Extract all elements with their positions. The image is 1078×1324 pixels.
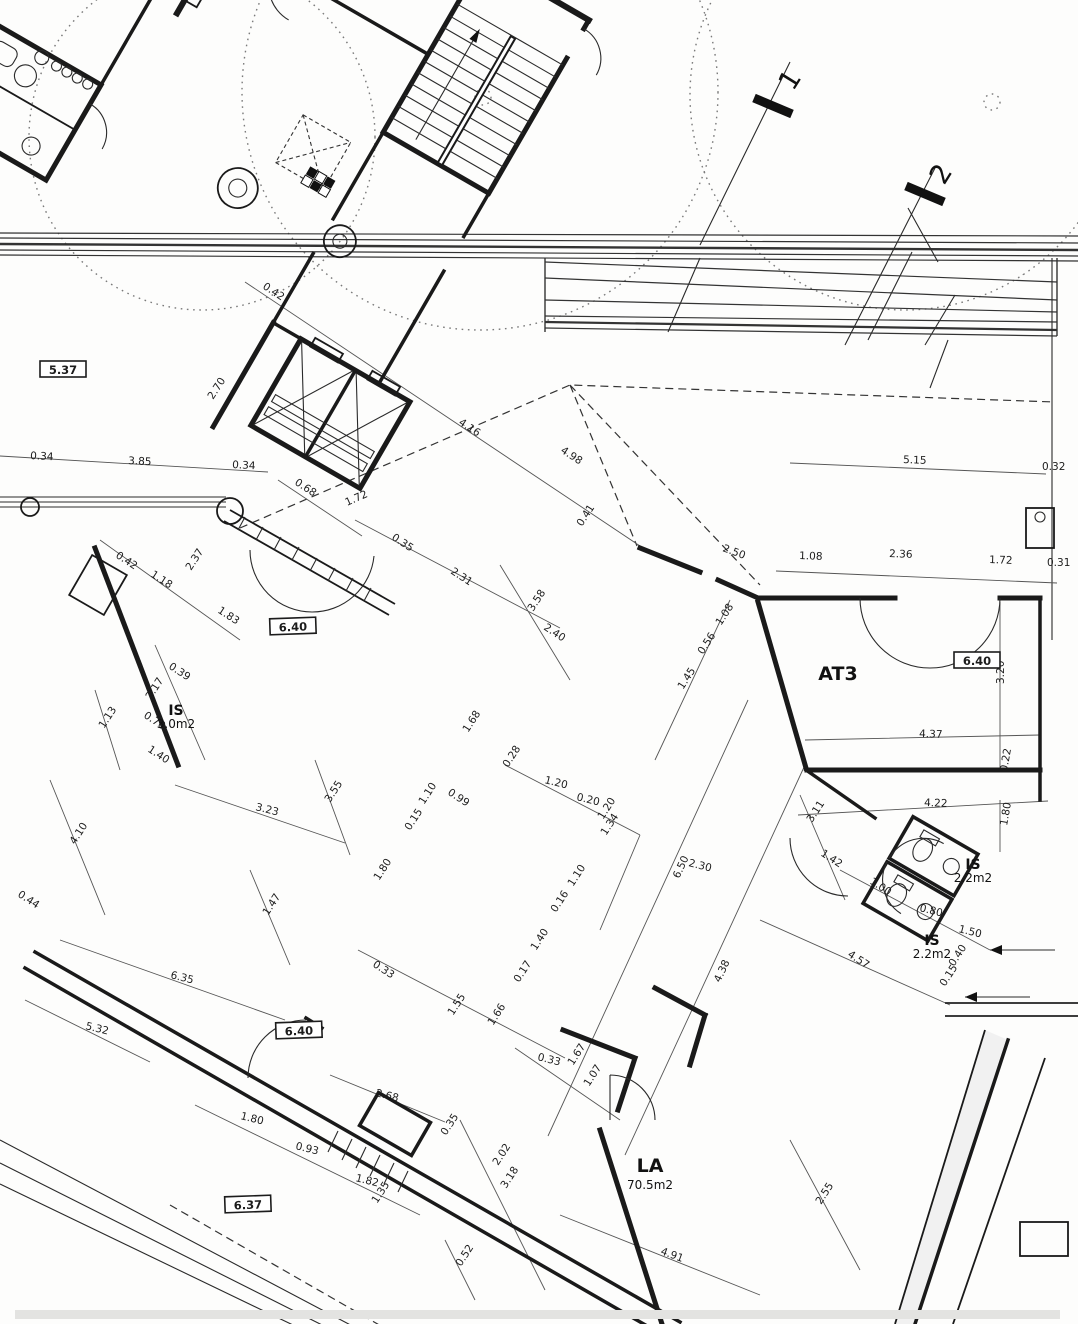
core-top-wall <box>277 0 589 20</box>
dimension-label: 0.31 <box>1047 557 1070 569</box>
dimension-label: 1.47 <box>260 891 283 917</box>
svg-text:5.37: 5.37 <box>49 363 77 377</box>
door-arc <box>74 104 119 149</box>
bottom-left-walls <box>0 952 680 1324</box>
hatched-wall <box>224 510 395 615</box>
door-arc <box>202 0 346 20</box>
dimension-label: 3.11 <box>804 798 827 824</box>
elevator-shafts <box>251 332 414 489</box>
dimension-label: 1.40 <box>528 926 551 952</box>
section-marker-label: 2 <box>924 159 959 190</box>
boxed-elevation-label: 6.40 <box>276 1021 323 1039</box>
svg-text:6.40: 6.40 <box>285 1024 314 1039</box>
dimension-label: 2.37 <box>183 546 206 572</box>
dimension-label: 3.23 <box>254 801 280 818</box>
boxed-elevation-label: 6.37 <box>225 1195 272 1213</box>
dimension-label: 1.80 <box>239 1110 265 1127</box>
left-boundary-fence <box>0 497 395 765</box>
boxed-elevation-label: 6.40 <box>954 652 1000 668</box>
dimension-label: 3.85 <box>128 455 152 468</box>
dimension-label: 1.00 <box>867 875 893 898</box>
dimension-label: 4.38 <box>712 958 733 984</box>
dimension-label: 0.52 <box>453 1242 476 1268</box>
dimension-label: 0.80 <box>918 902 944 919</box>
dimension-label: 0.35 <box>438 1111 461 1137</box>
dimension-label: 2.55 <box>813 1180 836 1206</box>
dimension-label: 1.66 <box>485 1001 508 1027</box>
entry-arrow <box>965 950 1055 997</box>
dimension-lines <box>0 282 1057 1300</box>
dimension-label: 2.40 <box>541 621 567 644</box>
dimension-label: 1.50 <box>957 923 983 940</box>
dimension-label: 0.35 <box>389 531 415 554</box>
door-arc <box>610 1075 655 1120</box>
small-dotted-circle <box>984 94 1000 110</box>
dimension-label: 2.36 <box>889 548 913 561</box>
dimension-label: 1.83 <box>215 604 241 627</box>
fixture-circles <box>32 48 95 93</box>
dimension-label: 1.20 <box>543 774 569 791</box>
dimension-label: 4.16 <box>456 416 482 439</box>
room-area-label: 3.0m2 <box>157 717 195 731</box>
dimension-label: 2.50 <box>721 543 747 562</box>
floor-plan-drawing: 0.424.162.700.343.850.340.684.981.720.35… <box>0 0 1078 1324</box>
dimension-label: 1.68 <box>460 708 483 734</box>
dimension-label: 0.56 <box>695 630 718 656</box>
dimension-label: 3.55 <box>322 778 345 804</box>
dimension-label: 0.20 <box>575 791 601 808</box>
dimension-label: 0.99 <box>445 786 471 809</box>
svg-text:6.40: 6.40 <box>279 620 308 635</box>
dimension-label: 1.08 <box>799 550 823 563</box>
room-area-label: 70.5m2 <box>627 1178 673 1192</box>
dimension-label: 2.70 <box>205 375 228 401</box>
room-label: LA <box>637 1155 664 1177</box>
boxed-elevation-label: 5.37 <box>40 361 86 377</box>
room-area-label: 2.2m2 <box>954 871 992 885</box>
dimension-label: 0.34 <box>30 450 54 463</box>
dimension-label: 3.58 <box>525 587 548 613</box>
dotted-circle-arcs <box>29 0 1078 330</box>
dimension-label: 1.07 <box>581 1062 604 1088</box>
room-area-label: 2.2m2 <box>913 947 951 961</box>
section-marker-label: 1 <box>773 65 808 96</box>
floor-plan-canvas: 0.424.162.700.343.850.340.684.981.720.35… <box>0 0 1078 1324</box>
dimension-label: 0.15 <box>402 806 425 832</box>
dimension-label: 1.10 <box>416 780 439 806</box>
boxed-elevation-label: 6.40 <box>270 617 317 635</box>
dimension-label: 0.17 <box>511 958 534 984</box>
sink <box>10 61 40 91</box>
room-la-walls <box>563 988 705 1324</box>
dimension-label: 4.10 <box>67 820 90 846</box>
bottom-right-area <box>895 945 1078 1324</box>
toilet <box>0 39 20 69</box>
dimension-label: 4.37 <box>919 728 943 741</box>
dimension-label: 1.82 <box>354 1172 380 1189</box>
dimension-label: 0.34 <box>232 459 256 472</box>
dimension-label: 2.31 <box>448 565 474 588</box>
dimension-label: 1.72 <box>989 554 1013 567</box>
dimension-label: 1.42 <box>818 847 844 870</box>
dimension-label: 1.72 <box>343 488 369 508</box>
dimension-label: 1.18 <box>148 568 174 591</box>
dimension-label: 0.28 <box>500 743 523 769</box>
column-block <box>1026 508 1054 548</box>
dimension-label: 1.08 <box>713 601 736 627</box>
dimension-label: 0.16 <box>548 888 571 914</box>
dashed-guide-lines <box>170 385 1055 1324</box>
dimension-label: 6.35 <box>169 969 195 986</box>
dimension-label: 1.45 <box>675 665 698 691</box>
dimension-label: 1.55 <box>445 991 468 1017</box>
dimension-label: 1.80 <box>998 801 1014 826</box>
dimension-label: 1.80 <box>371 856 394 882</box>
dimension-label: 1.10 <box>565 862 588 888</box>
dimension-label: 4.98 <box>558 444 584 467</box>
dimension-label: 0.42 <box>260 280 286 303</box>
dimension-label: 0.44 <box>15 888 41 911</box>
room-label: AT3 <box>818 663 857 685</box>
svg-text:6.37: 6.37 <box>234 1198 263 1213</box>
section-marker-graphics <box>700 62 944 345</box>
dimension-label: 2.68 <box>374 1087 400 1104</box>
dimension-label: 2.02 <box>490 1141 513 1167</box>
sink <box>19 134 44 159</box>
staircase <box>383 0 618 210</box>
dimension-label: 4.91 <box>659 1246 685 1265</box>
legend-box <box>1020 1222 1068 1256</box>
svg-text:6.40: 6.40 <box>963 654 991 668</box>
toilet-room-left <box>0 24 130 197</box>
scan-edge <box>15 1310 1060 1319</box>
wash-basin <box>210 161 265 216</box>
dimension-label: 0.32 <box>1042 461 1065 473</box>
door-arc <box>567 29 613 75</box>
dimension-label: 4.22 <box>924 797 948 810</box>
section-1-tick <box>754 98 792 114</box>
dimension-label: 0.33 <box>370 958 396 981</box>
dimension-label: 1.67 <box>565 1041 588 1067</box>
dimension-label: 5.15 <box>903 454 927 467</box>
dimension-label: 3.18 <box>498 1164 521 1190</box>
dimension-label: 1.13 <box>96 704 119 730</box>
dimension-label: 1.40 <box>145 743 171 766</box>
dimension-label: 5.32 <box>84 1020 110 1037</box>
